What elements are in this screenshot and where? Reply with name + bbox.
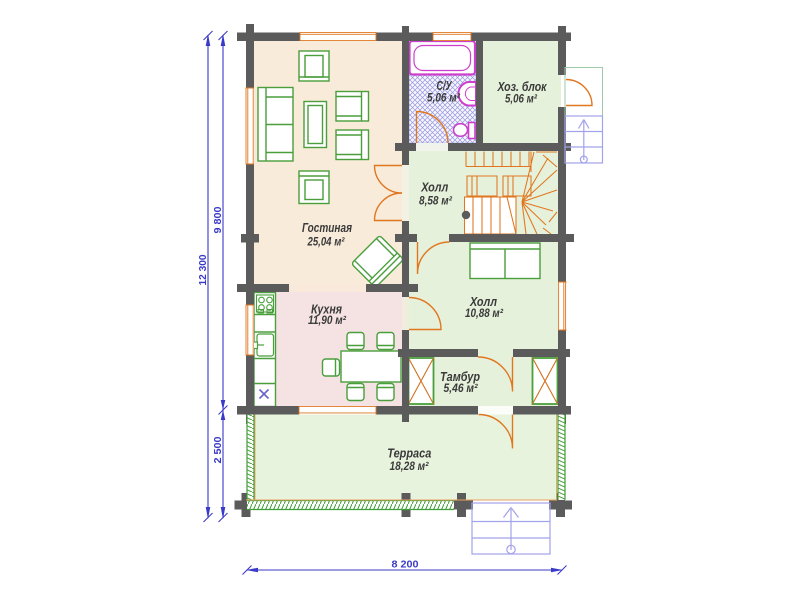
svg-text:5,06 м²: 5,06 м² [427, 91, 461, 105]
svg-text:5,46 м²: 5,46 м² [444, 381, 479, 395]
svg-text:18,28 м²: 18,28 м² [390, 459, 430, 473]
svg-text:11,90 м²: 11,90 м² [308, 313, 347, 327]
svg-text:8 200: 8 200 [392, 560, 419, 571]
svg-text:8,58 м²: 8,58 м² [419, 194, 453, 208]
svg-text:5,06 м²: 5,06 м² [505, 92, 538, 106]
svg-text:10,88 м²: 10,88 м² [465, 306, 504, 320]
svg-text:25,04 м²: 25,04 м² [307, 235, 346, 249]
svg-text:12 300: 12 300 [198, 254, 209, 285]
svg-text:Холл: Холл [420, 180, 448, 195]
svg-text:2 500: 2 500 [213, 436, 224, 463]
svg-text:9 800: 9 800 [213, 206, 224, 233]
svg-text:Гостиная: Гостиная [302, 220, 352, 235]
